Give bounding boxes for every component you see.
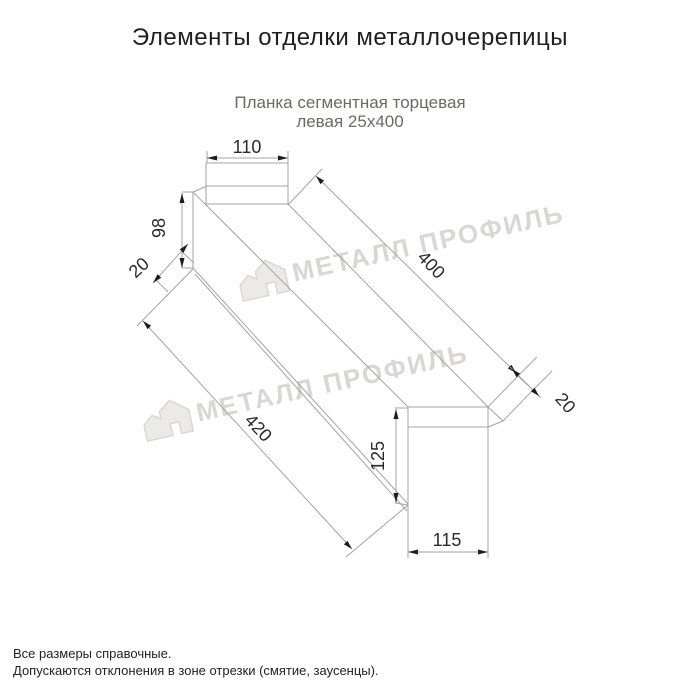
footer-note-1: Все размеры справочные.: [13, 646, 613, 663]
metal-profil-logo-icon: [236, 257, 289, 301]
metal-profil-logo-icon: [140, 397, 193, 441]
arrowhead: [180, 193, 185, 203]
arrowhead: [207, 156, 217, 161]
arrowhead: [394, 493, 399, 503]
arrowhead: [408, 550, 418, 555]
dim-20-right-ext-upper: [518, 357, 537, 376]
footer-note-2: Допускаются отклонения в зоне отрезки (с…: [13, 663, 613, 680]
arrowhead: [478, 550, 488, 555]
dim-110-label: 110: [233, 137, 262, 157]
top-flange-end-face: [206, 163, 288, 204]
technical-drawing: МЕТАЛЛ ПРОФИЛЬ МЕТАЛЛ ПРОФИЛЬ 110 98 20 …: [0, 0, 700, 700]
dim-20-right-label: 20: [551, 389, 579, 417]
arrowhead: [180, 258, 185, 268]
dim-420-ext-end: [346, 505, 408, 557]
end-hem-connector: [488, 421, 503, 427]
watermark-text: МЕТАЛЛ ПРОФИЛЬ: [193, 338, 471, 427]
dim-400-ext-start: [288, 169, 322, 205]
dim-115-label: 115: [433, 530, 462, 550]
footer-notes: Все размеры справочные. Допускаются откл…: [13, 646, 613, 679]
arrowhead: [394, 409, 399, 419]
dim-20-left-label: 20: [125, 253, 153, 281]
arrowhead: [278, 156, 288, 161]
dim-125-label: 125: [368, 441, 388, 471]
dim-98-label: 98: [149, 218, 169, 238]
dim-20-right-ext-lower: [533, 371, 552, 390]
watermark-lower: МЕТАЛЛ ПРОФИЛЬ: [140, 335, 471, 441]
dim-420-ext-start: [137, 269, 193, 326]
dim-420-line: [143, 321, 352, 549]
dim-20-left-ext-lower: [156, 280, 168, 292]
top-corner-edge: [193, 186, 207, 192]
